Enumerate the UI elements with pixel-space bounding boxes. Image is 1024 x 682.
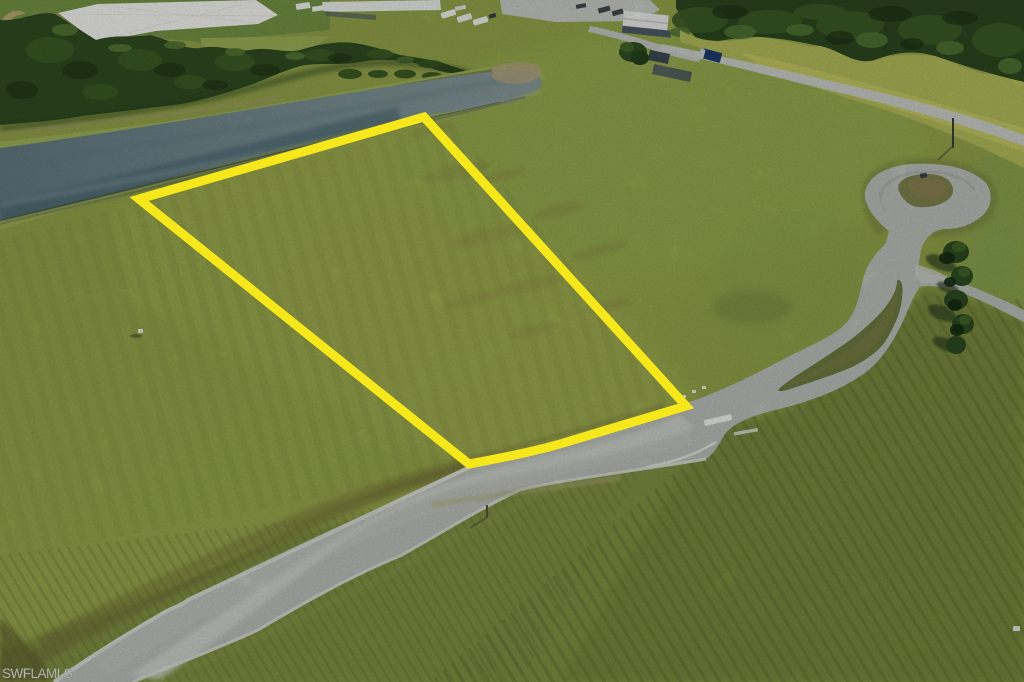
svg-text:SWFLAMLS: SWFLAMLS — [2, 666, 73, 681]
